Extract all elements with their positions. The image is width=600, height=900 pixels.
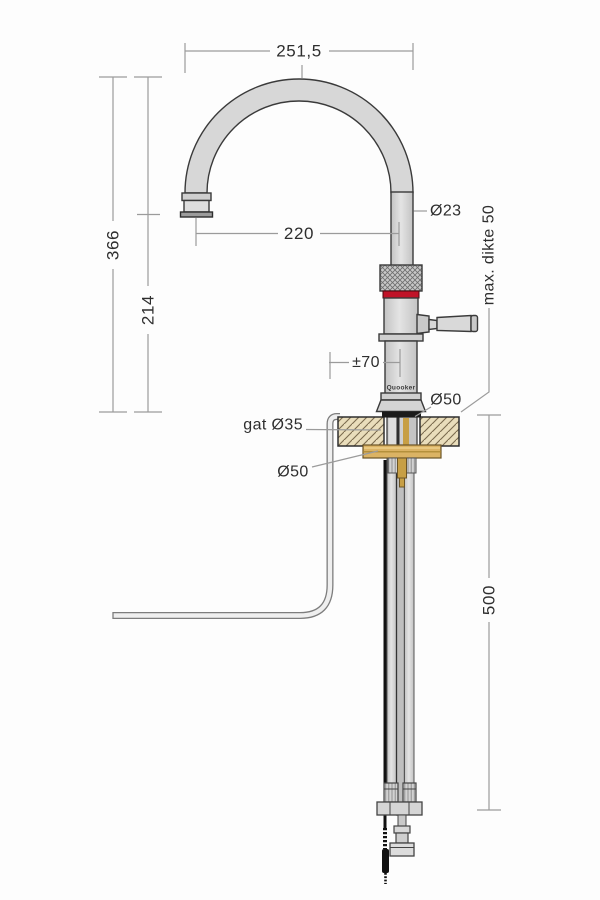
label-max-counter-thickness: max. dikte 50 [461, 205, 498, 412]
total-height-value: 366 [104, 230, 123, 260]
label-tube-diameter: Ø23 [414, 203, 462, 220]
brand-logo: Quooker [387, 385, 416, 392]
red-band [383, 291, 419, 298]
dimension-spout-reach: 220 [196, 218, 399, 246]
faucet-handle [417, 315, 478, 334]
dimension-below-counter: 500 [477, 415, 501, 810]
faucet-shank [387, 417, 417, 446]
spout-outlet [181, 193, 213, 217]
body-ridge [379, 334, 423, 341]
tube-bundle [385, 458, 414, 828]
outlet-height-value: 214 [139, 295, 158, 325]
base-flare [377, 400, 426, 412]
countertop-right-slab [420, 417, 459, 446]
vertical-tube [391, 192, 413, 266]
base-diameter-value: Ø50 [430, 392, 461, 409]
flexible-hose [113, 417, 340, 620]
arc-width-value: 251,5 [276, 42, 322, 61]
water-tube-center [397, 458, 405, 815]
water-tube-right [405, 458, 415, 785]
drawing-canvas: Quooker 251,5 366 214 220 Ø23 max. dikte… [0, 0, 600, 900]
faucet-technical-drawing: Quooker 251,5 366 214 220 Ø23 max. dikte… [0, 0, 600, 900]
spout-reach-value: 220 [284, 224, 314, 243]
base-ring [381, 393, 421, 400]
swivel-range-value: ±70 [352, 354, 380, 371]
hole-diameter-value: gat Ø35 [243, 417, 303, 434]
upper-body [384, 298, 418, 334]
handle-end-cap [471, 316, 478, 332]
handle-grip [437, 316, 471, 332]
water-tube-left [387, 458, 397, 785]
below-counter-value: 500 [480, 585, 499, 615]
countertop-left-slab [338, 417, 384, 446]
bottom-fitting [390, 815, 414, 856]
mounting-bracket [377, 802, 422, 815]
max-thickness-value: max. dikte 50 [481, 205, 498, 305]
handle-neck [429, 320, 437, 330]
dimension-outlet-height: 214 [134, 77, 162, 412]
cable-connector [382, 828, 389, 884]
flange-diameter-value: Ø50 [277, 464, 308, 481]
dimension-total-height: 366 [99, 77, 127, 412]
tube-diameter-value: Ø23 [430, 203, 461, 220]
handle-collar [417, 315, 429, 334]
dimension-arc-width: 251,5 [185, 42, 413, 74]
knurled-ring [380, 265, 422, 291]
